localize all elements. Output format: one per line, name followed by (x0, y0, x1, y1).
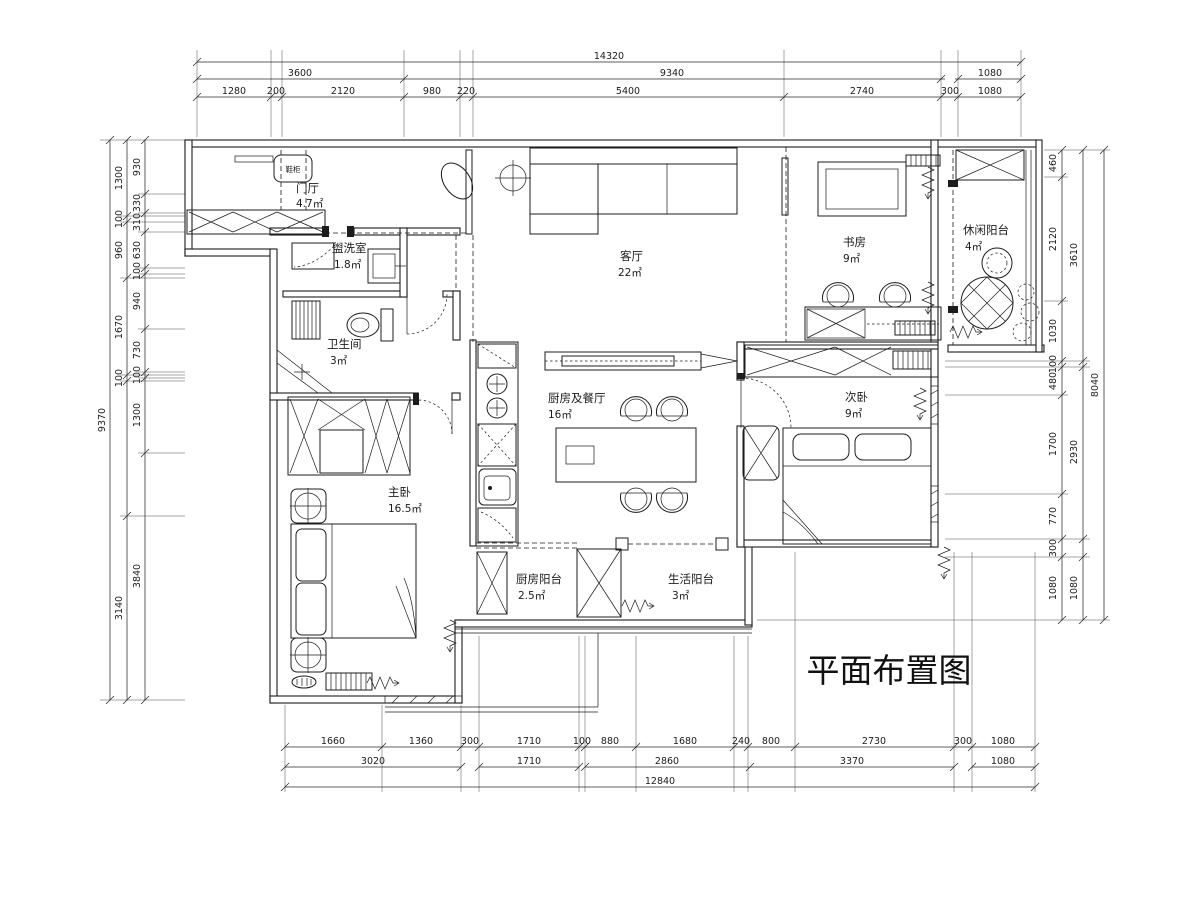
washer (982, 248, 1012, 278)
squiggle-symbol (914, 388, 926, 420)
dim-label: 100 (573, 736, 591, 747)
dim-label: 100 (1048, 355, 1059, 373)
dim-label: 1670 (114, 315, 125, 339)
desk (805, 307, 941, 340)
dim-label: 330 (132, 194, 143, 212)
dim-chain-right: 460 2120 1030 100 480 1700 770 300 1080 … (1048, 146, 1108, 624)
dim-label: 1080 (978, 86, 1002, 97)
room-label: 厨房及餐厅 (548, 391, 606, 405)
dim-label: 3610 (1069, 243, 1080, 267)
room-entry: 鞋柜 门厅 4.7㎡ (187, 150, 531, 234)
plant-circle (961, 277, 1013, 329)
room-label: 书房 (843, 235, 866, 249)
dim-label: 300 (1048, 539, 1059, 557)
room-area: 4㎡ (965, 241, 983, 253)
dim-label: 12840 (645, 776, 675, 787)
dim-label: 630 (132, 241, 143, 259)
dim-label: 980 (423, 86, 441, 97)
room-label: 厨房阳台 (516, 572, 562, 586)
room-kitchen-dining: 厨房及餐厅 16㎡ (476, 342, 696, 546)
desk-chair (880, 283, 911, 307)
room-area: 9㎡ (843, 253, 861, 265)
room-label: 生活阳台 (668, 572, 714, 586)
dim-label: 1280 (222, 86, 246, 97)
dim-label: 100 (114, 210, 125, 228)
floor-plan-canvas: 14320 3600 9340 1080 1280 200 2120 980 2… (0, 0, 1200, 900)
wardrobe (745, 345, 938, 377)
room-area: 4.7㎡ (296, 198, 324, 210)
daybed (818, 162, 906, 216)
ceiling-lamp-icon (495, 160, 531, 196)
lamp-icon (290, 637, 326, 673)
room-label: 主卧 (388, 485, 411, 499)
dim-label: 200 (267, 86, 285, 97)
dim-label: 310 (132, 213, 143, 231)
dining-chair (657, 488, 688, 512)
dim-label: 2120 (1048, 227, 1059, 251)
dim-label: 1360 (409, 736, 433, 747)
shrub (1013, 323, 1031, 341)
dining-chair (657, 397, 688, 421)
sofa (530, 148, 737, 164)
room-area: 22㎡ (618, 267, 642, 279)
top-wall-vent (235, 156, 273, 162)
squiggle-symbol (622, 600, 654, 612)
dim-label: 9340 (660, 68, 684, 79)
dim-label: 1680 (673, 736, 697, 747)
dim-label: 480 (1048, 372, 1059, 390)
entry-tag-label: 鞋柜 (286, 164, 301, 174)
room-label: 门厅 (296, 181, 319, 195)
drawing-title: 平面布置图 (807, 651, 972, 690)
dim-label: 3840 (132, 564, 143, 588)
dim-label: 1080 (1069, 576, 1080, 600)
dim-label: 100 (114, 369, 125, 387)
dim-label: 1700 (1048, 432, 1059, 456)
dim-label: 730 (132, 341, 143, 359)
room-label: 盥洗室 (332, 241, 367, 255)
room-area: 1.8㎡ (334, 259, 362, 271)
dim-label: 300 (461, 736, 479, 747)
dim-chain-top: 14320 3600 9340 1080 1280 200 2120 980 2… (193, 51, 1025, 101)
dim-label: 770 (1048, 507, 1059, 525)
dim-label: 9370 (97, 408, 108, 432)
squiggle-symbol (950, 326, 982, 338)
room-study: 书房 9㎡ (805, 155, 941, 340)
lamp-icon (290, 488, 326, 524)
shower-corner (277, 350, 332, 393)
door-arc (741, 378, 791, 428)
squiggle-symbol (938, 547, 950, 579)
dim-label: 2930 (1069, 440, 1080, 464)
dim-chain-bottom: 1660 1360 300 1710 100 880 1680 240 800 … (281, 736, 1039, 791)
door-arc (418, 400, 452, 434)
dim-label: 460 (1048, 154, 1059, 172)
basin (479, 469, 516, 505)
kitchen-counter (476, 342, 518, 546)
dining-table (556, 428, 696, 482)
room-service-balcony: 生活阳台 3㎡ (577, 549, 714, 617)
dim-label: 1710 (517, 756, 541, 767)
dim-label: 100 (132, 366, 143, 384)
desk-chair (823, 283, 854, 307)
room-washroom: 盥洗室 1.8㎡ (292, 241, 406, 283)
dim-label: 300 (941, 86, 959, 97)
dim-label: 1660 (321, 736, 345, 747)
floor-plan-drawing: 14320 3600 9340 1080 1280 200 2120 980 2… (0, 0, 1200, 900)
room-label: 休闲阳台 (963, 223, 1009, 237)
dim-label: 2120 (331, 86, 355, 97)
dim-label: 8040 (1090, 373, 1101, 397)
room-bathroom: 卫生间 3㎡ (277, 294, 447, 393)
dim-label: 1080 (1048, 576, 1059, 600)
dim-label: 3600 (288, 68, 312, 79)
balcony-glazing (1026, 150, 1031, 345)
dim-label: 240 (732, 736, 750, 747)
dim-label: 5400 (616, 86, 640, 97)
toilet (347, 313, 379, 337)
dim-label: 220 (457, 86, 475, 97)
dim-label: 1080 (991, 756, 1015, 767)
dim-chain-left: 9370 1300 100 960 1670 100 3140 930 330 … (97, 136, 149, 704)
room-kitchen-balcony: 厨房阳台 2.5㎡ (477, 552, 562, 614)
dim-label: 1300 (132, 403, 143, 427)
dim-label: 930 (132, 158, 143, 176)
door-arc (407, 294, 447, 334)
rug-oval (292, 676, 316, 688)
dim-label: 3140 (114, 596, 125, 620)
dim-label: 300 (954, 736, 972, 747)
dim-label: 100 (132, 262, 143, 280)
dim-label: 2730 (862, 736, 886, 747)
tv-cabinet (545, 352, 737, 370)
dim-label: 880 (601, 736, 619, 747)
room-label: 客厅 (620, 249, 643, 263)
dim-label: 1300 (114, 166, 125, 190)
room-area: 2.5㎡ (518, 590, 546, 602)
dim-label: 1080 (991, 736, 1015, 747)
wardrobe (288, 397, 410, 475)
bench (326, 673, 372, 690)
dim-label: 1080 (978, 68, 1002, 79)
dining-chair (621, 488, 652, 512)
dim-label: 2860 (655, 756, 679, 767)
room-area: 16.5㎡ (388, 503, 422, 515)
room-area: 3㎡ (672, 590, 690, 602)
room-living: 客厅 22㎡ (530, 148, 788, 370)
room-area: 9㎡ (845, 408, 863, 420)
room-label: 卫生间 (327, 337, 362, 351)
dim-label: 3020 (361, 756, 385, 767)
walls (185, 140, 1044, 712)
bed (291, 524, 416, 638)
dining-chair (621, 397, 652, 421)
dim-label: 1710 (517, 736, 541, 747)
room-label: 次卧 (845, 390, 868, 404)
bed (783, 428, 931, 544)
dim-label: 800 (762, 736, 780, 747)
squiggle-symbol (444, 620, 456, 652)
dim-label: 1030 (1048, 319, 1059, 343)
room-area: 3㎡ (330, 355, 348, 367)
room-area: 16㎡ (548, 409, 572, 421)
dim-label: 940 (132, 292, 143, 310)
room-master-bedroom: 主卧 16.5㎡ (288, 397, 456, 690)
dim-label: 3370 (840, 756, 864, 767)
dim-label: 2740 (850, 86, 874, 97)
dim-label: 14320 (594, 51, 624, 62)
dim-label: 960 (114, 241, 125, 259)
